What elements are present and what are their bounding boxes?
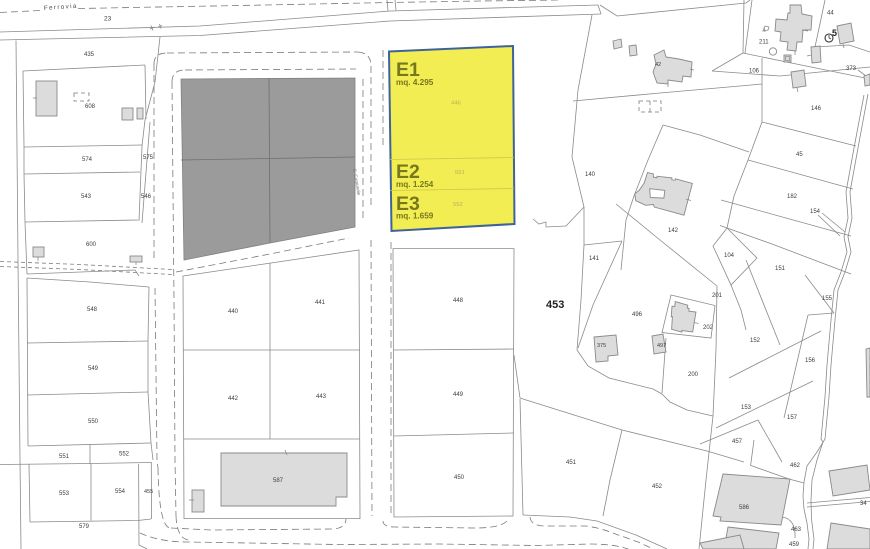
svg-text:104: 104 [724,253,735,259]
svg-text:546: 546 [141,194,152,200]
svg-text:153: 153 [741,405,752,411]
svg-text:552: 552 [119,452,130,458]
svg-text:543: 543 [81,194,92,200]
svg-text:42: 42 [655,62,661,68]
svg-text:146: 146 [811,106,822,112]
svg-text:201: 201 [712,293,723,299]
svg-text:552: 552 [453,202,463,208]
svg-text:586: 586 [739,505,750,511]
svg-text:141: 141 [589,256,600,262]
svg-text:463: 463 [791,527,802,533]
svg-text:152: 152 [750,338,761,344]
svg-text:551: 551 [455,170,465,176]
svg-text:156: 156 [805,358,816,364]
svg-text:mq. 1.254: mq. 1.254 [396,180,434,189]
svg-text:575: 575 [143,155,154,161]
svg-text:608: 608 [85,104,96,110]
svg-text:453: 453 [546,299,564,311]
svg-text:549: 549 [88,366,99,372]
svg-text:34: 34 [860,501,867,507]
svg-text:23: 23 [104,16,112,23]
svg-text:140: 140 [585,172,596,178]
svg-text:45: 45 [796,152,803,158]
svg-text:182: 182 [787,194,798,200]
svg-text:211: 211 [759,40,769,46]
svg-text:496: 496 [632,312,643,318]
svg-text:442: 442 [228,396,239,402]
svg-text:435: 435 [84,52,95,58]
svg-text:457: 457 [732,439,743,445]
svg-text:448: 448 [453,298,464,304]
svg-text:553: 553 [59,491,70,497]
svg-text:142: 142 [668,228,679,234]
svg-text:44: 44 [827,11,834,17]
svg-text:154: 154 [810,209,821,215]
svg-text:459: 459 [789,542,800,548]
svg-text:449: 449 [453,392,464,398]
svg-text:mq. 1.659: mq. 1.659 [396,212,434,221]
svg-text:462: 462 [790,463,801,469]
svg-text:452: 452 [652,484,663,490]
svg-text:455: 455 [144,489,153,495]
svg-text:151: 151 [775,266,786,272]
svg-text:587: 587 [273,478,284,484]
svg-text:mq. 4.295: mq. 4.295 [396,78,434,87]
svg-text:440: 440 [228,309,239,315]
svg-text:446: 446 [451,101,461,107]
svg-text:579: 579 [79,524,90,530]
svg-text:574: 574 [82,157,93,163]
svg-text:155: 155 [822,296,833,302]
svg-text:106: 106 [749,69,760,75]
svg-text:200: 200 [688,372,699,378]
svg-text:373: 373 [846,66,857,72]
svg-text:550: 550 [88,419,99,425]
svg-text:497: 497 [657,343,666,349]
svg-text:600: 600 [86,242,97,248]
svg-text:450: 450 [454,475,465,481]
svg-text:551: 551 [59,454,70,460]
svg-text:157: 157 [787,415,798,421]
svg-text:441: 441 [315,300,326,306]
svg-text:443: 443 [316,394,327,400]
svg-text:375: 375 [597,343,606,349]
svg-text:554: 554 [115,489,126,495]
svg-text:548: 548 [87,307,98,313]
svg-text:451: 451 [566,460,577,466]
